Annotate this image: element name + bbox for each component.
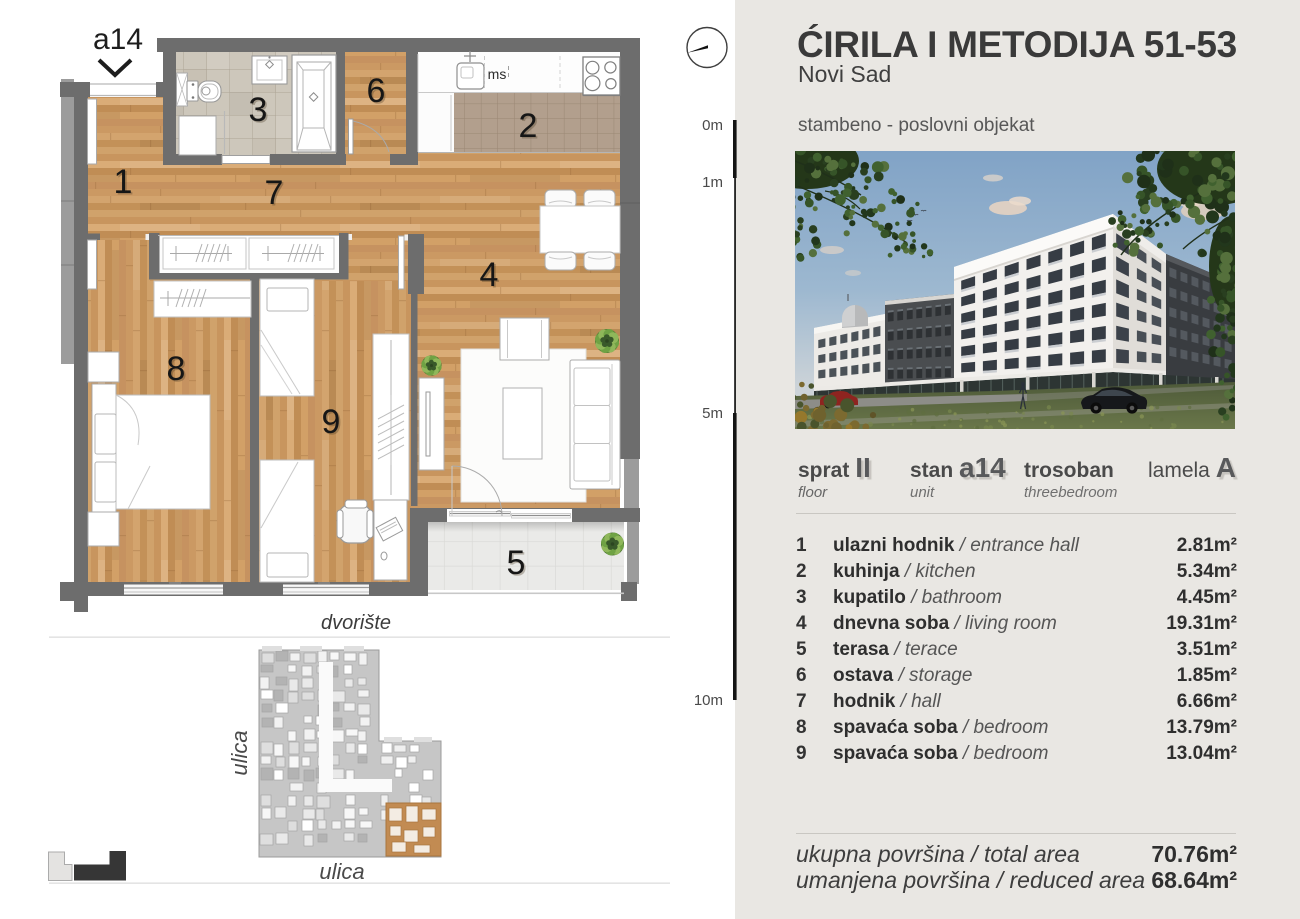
svg-text:ulica: ulica xyxy=(227,730,252,775)
svg-text:10m: 10m xyxy=(694,692,723,709)
svg-text:7: 7 xyxy=(265,174,284,212)
svg-text:9: 9 xyxy=(322,403,341,441)
svg-text:3: 3 xyxy=(249,91,268,129)
svg-text:5: 5 xyxy=(507,544,526,582)
svg-text:8: 8 xyxy=(167,350,186,388)
svg-text:1m: 1m xyxy=(702,174,723,191)
svg-text:a14: a14 xyxy=(93,23,143,56)
svg-text:2: 2 xyxy=(519,107,538,145)
svg-text:0m: 0m xyxy=(702,117,723,134)
svg-text:ms: ms xyxy=(488,66,507,82)
svg-text:6: 6 xyxy=(367,72,386,110)
svg-text:4: 4 xyxy=(480,256,499,294)
svg-text:1: 1 xyxy=(114,163,133,201)
svg-text:ulica: ulica xyxy=(319,859,364,884)
svg-text:5m: 5m xyxy=(702,405,723,422)
svg-text:dvorište: dvorište xyxy=(321,612,391,634)
